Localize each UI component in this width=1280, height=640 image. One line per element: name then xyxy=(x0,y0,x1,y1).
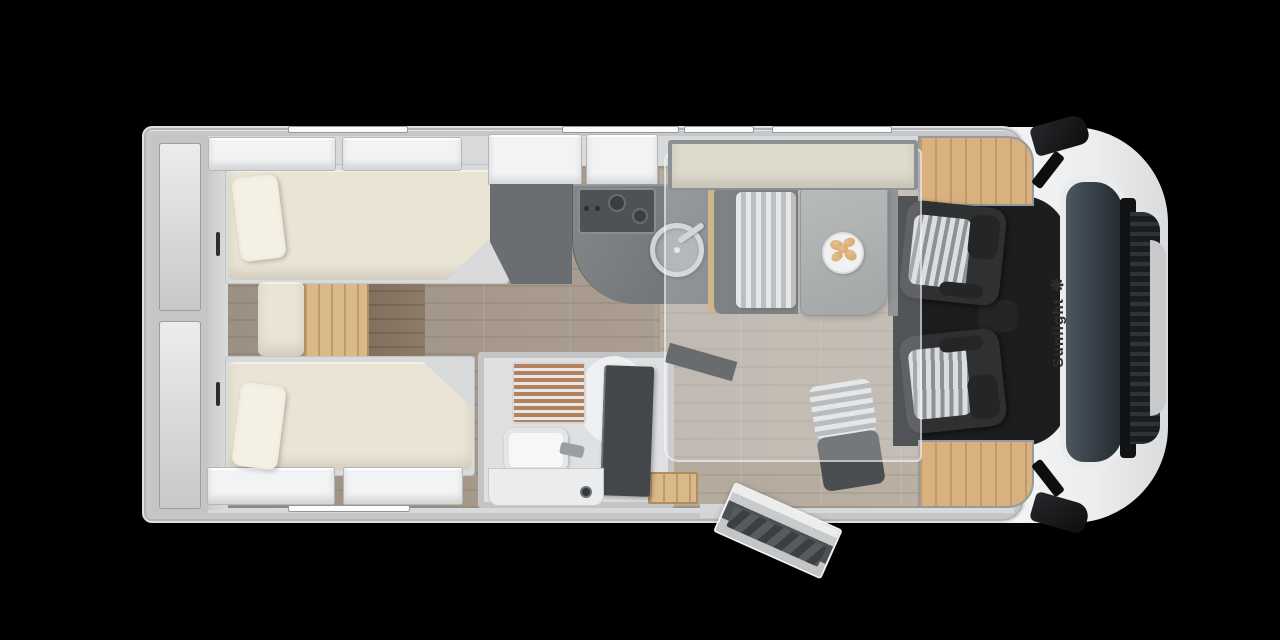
cooktop-knob xyxy=(595,206,600,211)
overhead-locker xyxy=(586,134,658,186)
motorhome-floorplan: Sunlight❋ xyxy=(0,0,1280,640)
burner xyxy=(632,208,648,224)
passenger-seat-cushion xyxy=(908,345,973,421)
bathroom-door xyxy=(600,365,655,497)
travel-seat-base xyxy=(816,429,886,492)
front-bumper xyxy=(1150,240,1166,416)
vanity-knob xyxy=(580,486,592,498)
locker-handle xyxy=(216,232,220,256)
overhead-locker xyxy=(343,467,463,505)
window-slot xyxy=(288,126,408,133)
cooktop-knob xyxy=(584,206,589,211)
between-bed-cushion xyxy=(258,282,304,356)
burner xyxy=(608,194,626,212)
rear-shelf-lower xyxy=(159,321,201,509)
shower-grate xyxy=(512,362,586,424)
passenger-headrest xyxy=(967,373,1001,420)
window-slot xyxy=(772,126,892,133)
window-slot xyxy=(288,505,410,512)
floor-dark-patch xyxy=(368,276,425,362)
bed-step xyxy=(303,278,369,358)
brand-logo: Sunlight❋ xyxy=(1038,252,1078,392)
cab-wood-panel-top xyxy=(918,136,1034,206)
sink-drain xyxy=(674,247,680,253)
passenger-seat xyxy=(898,327,1008,435)
overhead-locker xyxy=(488,134,582,186)
driver-headrest xyxy=(967,214,1001,261)
driver-seat xyxy=(898,199,1008,307)
entry-door-window xyxy=(726,506,826,567)
cab-wood-panel-bottom xyxy=(918,440,1034,508)
croissant xyxy=(838,245,848,253)
dinette-bench-cushion xyxy=(736,192,796,308)
cab-partition xyxy=(888,186,898,316)
overhead-locker xyxy=(208,137,336,171)
washbasin xyxy=(504,428,568,472)
brand-logo-icon: ❋ xyxy=(1048,276,1067,291)
driver-seat-cushion xyxy=(908,214,973,290)
locker-handle xyxy=(216,382,220,406)
wood-cabinet xyxy=(648,472,698,504)
drop-down-bed-panel xyxy=(668,140,918,190)
brand-name: Sunlight xyxy=(1050,298,1067,368)
rear-shelf-upper xyxy=(159,143,201,311)
overhead-locker xyxy=(342,137,462,171)
window-slot xyxy=(562,126,679,133)
window-slot xyxy=(684,126,754,133)
overhead-locker xyxy=(207,467,335,505)
